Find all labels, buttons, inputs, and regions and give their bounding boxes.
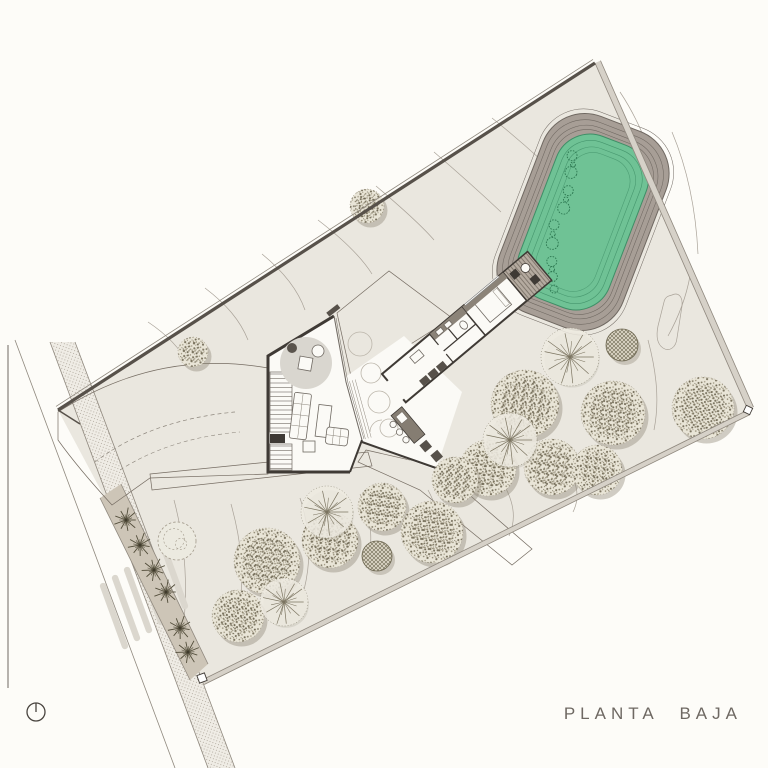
armchair — [325, 427, 349, 447]
lounge-chair — [312, 345, 324, 357]
site-plan-page: PLANTA BAJA — [0, 0, 768, 768]
side-table — [298, 356, 313, 371]
sketch-tree — [158, 522, 196, 560]
stairs — [270, 372, 292, 470]
site-plan-canvas — [0, 0, 768, 768]
ottoman — [303, 441, 315, 452]
plant-pot — [287, 343, 297, 353]
crosswalk-stripe — [99, 582, 129, 650]
plan-title: PLANTA BAJA — [564, 704, 742, 724]
north-indicator — [27, 703, 45, 721]
